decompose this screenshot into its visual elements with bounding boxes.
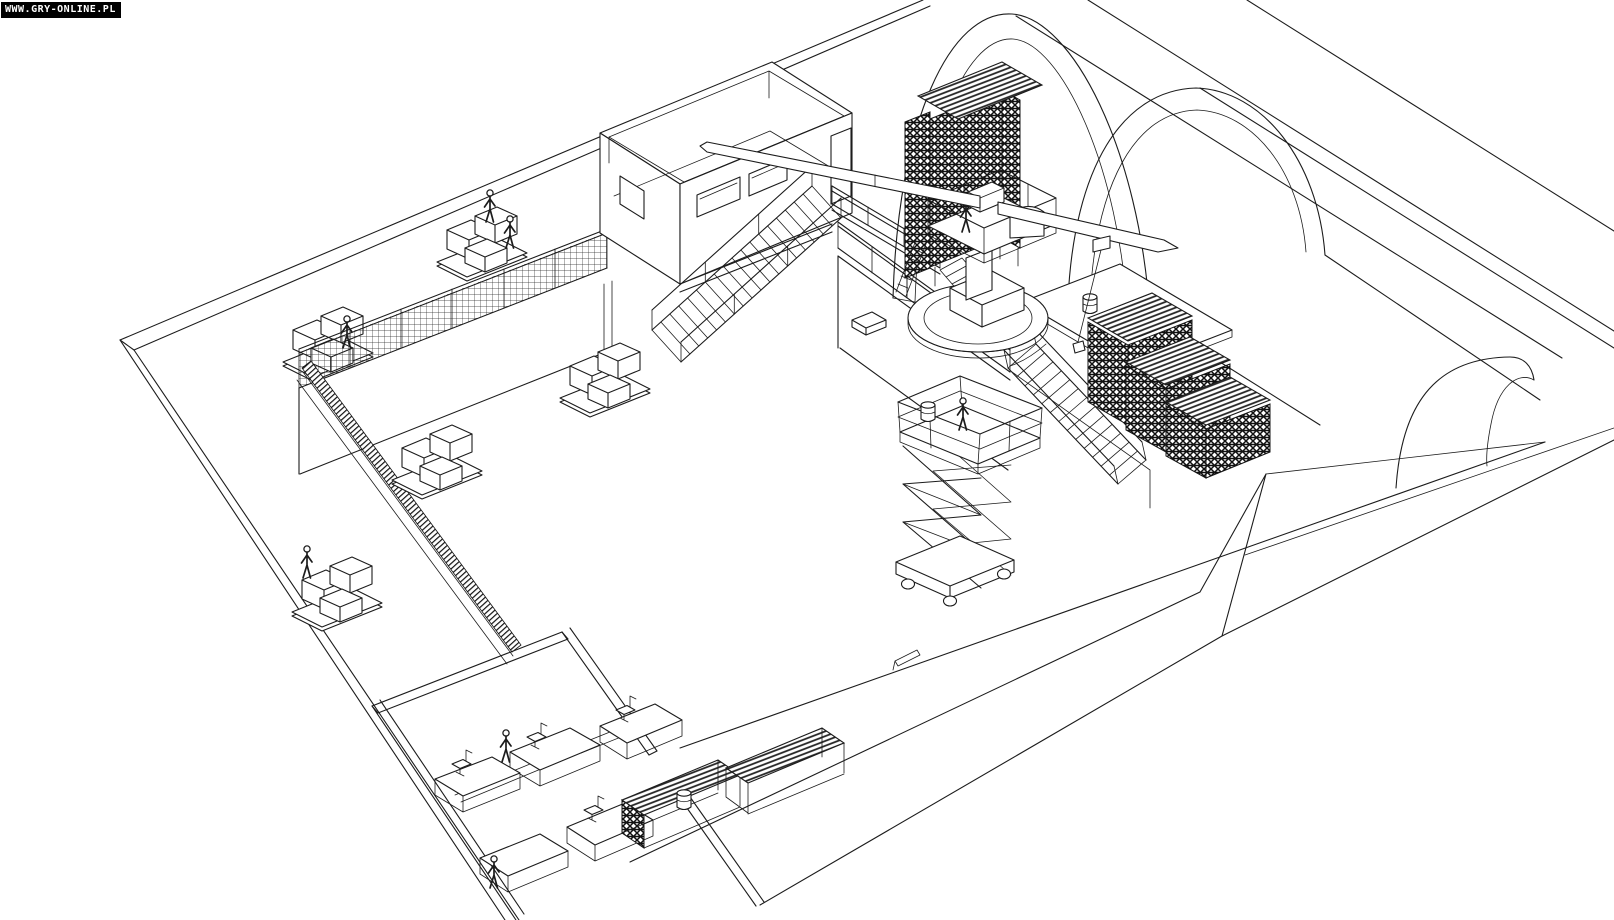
- scissor-lift: [896, 376, 1042, 606]
- office-desk: [600, 704, 682, 759]
- office-desk: [510, 728, 600, 786]
- crane-trolley: [1093, 236, 1110, 252]
- small-step-box: [852, 312, 886, 335]
- pallet-racks: [622, 728, 844, 848]
- crane-hook: [1073, 341, 1085, 353]
- level-blueprint: WWW.GRY-ONLINE.PL: [0, 0, 1614, 920]
- tower-top-slab: [918, 62, 1042, 119]
- floor-step-detail: [893, 650, 920, 670]
- watermark-badge: WWW.GRY-ONLINE.PL: [1, 2, 121, 18]
- office-desk: [435, 757, 520, 812]
- stepped-work-platforms: [1088, 293, 1270, 478]
- building-shell: [120, 0, 1614, 920]
- end-wall-arch: [1396, 357, 1534, 488]
- blueprint-drawing: [0, 0, 1614, 920]
